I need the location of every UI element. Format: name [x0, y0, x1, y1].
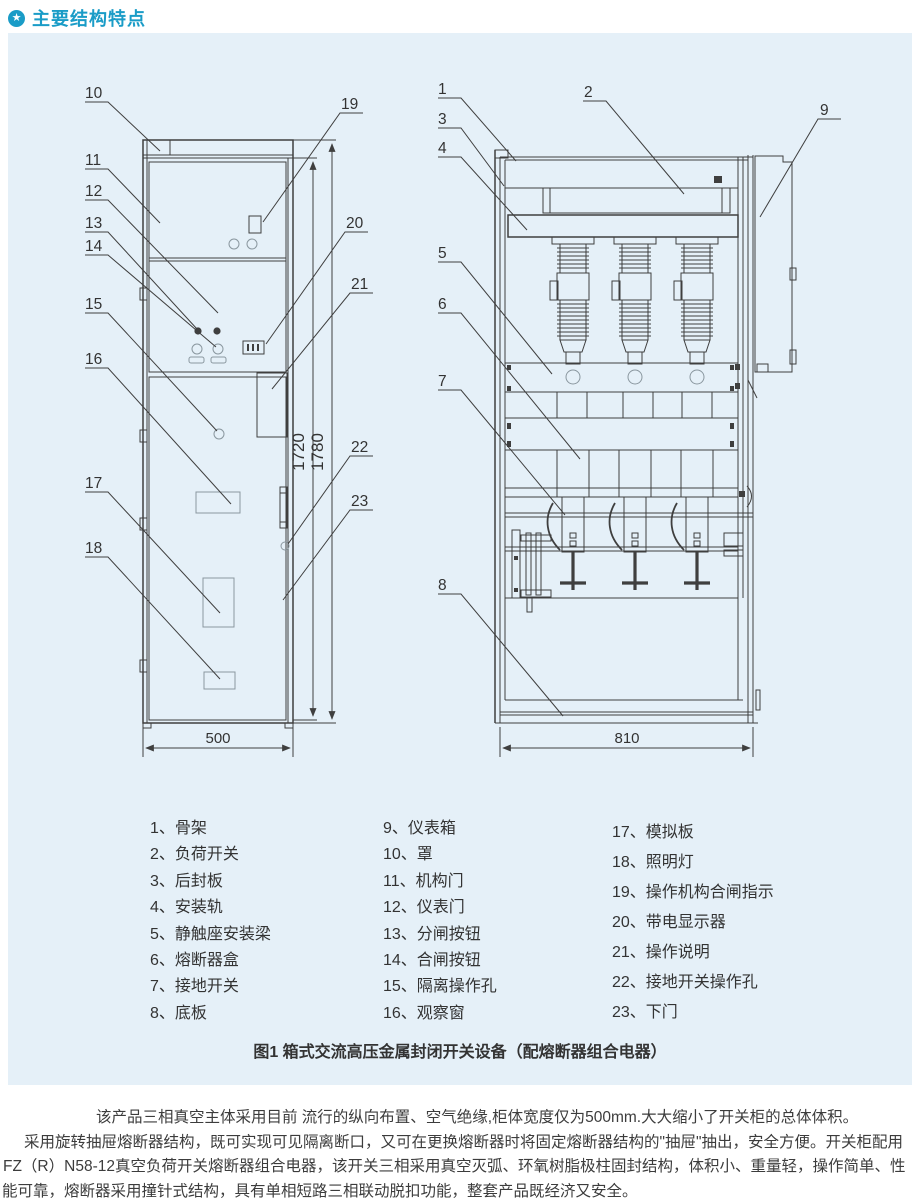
legend-item: 7、接地开关	[150, 974, 271, 1000]
legend-item: 16、观察窗	[383, 1001, 497, 1027]
star-circle-icon: ★	[8, 10, 25, 27]
observation-window	[196, 492, 240, 513]
callout-12: 12	[85, 183, 102, 200]
callout-15: 15	[85, 296, 102, 313]
load-switch	[543, 188, 730, 213]
callout-3: 3	[438, 111, 447, 128]
legend-column-3: 17、模拟板 18、照明灯 19、操作机构合闸指示 20、带电显示器 21、操作…	[612, 818, 774, 1028]
legend-item: 17、模拟板	[612, 818, 774, 848]
callout-17: 17	[85, 475, 102, 492]
legend-column-1: 1、骨架 2、负荷开关 3、后封板 4、安装轨 5、静触座安装梁 6、熔断器盒 …	[150, 816, 271, 1027]
mimic-board	[203, 578, 234, 627]
legend-item: 13、分闸按钮	[383, 922, 497, 948]
callout-14: 14	[85, 238, 103, 255]
legend-item: 3、后封板	[150, 869, 271, 895]
bottom-plate	[495, 700, 758, 723]
legend-item: 20、带电显示器	[612, 908, 774, 938]
lighting-lamp	[204, 672, 235, 689]
legend-item: 2、负荷开关	[150, 842, 271, 868]
callout-5: 5	[438, 245, 447, 262]
callout-19: 19	[341, 96, 358, 113]
mounting-rail	[508, 215, 738, 237]
dim-side-depth: 810	[614, 730, 639, 747]
earth-switch-shaft	[505, 513, 753, 551]
legend-item: 15、隔离操作孔	[383, 974, 497, 1000]
legend-item: 10、罩	[383, 842, 497, 868]
callout-16: 16	[85, 351, 102, 368]
callout-4: 4	[438, 140, 447, 157]
legend-item: 19、操作机构合闸指示	[612, 878, 774, 908]
callout-6: 6	[438, 296, 447, 313]
legend-item: 21、操作说明	[612, 938, 774, 968]
legend-item: 1、骨架	[150, 816, 271, 842]
callout-21: 21	[351, 276, 368, 293]
callout-18: 18	[85, 540, 102, 557]
front-view: 500 1720 1780	[140, 140, 336, 757]
side-view-leaders: 1 2 3 4 5 6 7 8 9	[438, 81, 841, 716]
side-view: 810	[495, 150, 796, 757]
legend-item: 14、合闸按钮	[383, 948, 497, 974]
callout-2: 2	[584, 84, 593, 101]
legend-item: 9、仪表箱	[383, 816, 497, 842]
callout-7: 7	[438, 373, 447, 390]
description-line: 采用旋转抽屉熔断器结构，既可实现可见隔离断口，又可在更换熔断器时将固定熔断器结构…	[2, 1131, 918, 1156]
fuse-box	[505, 418, 738, 450]
callout-8: 8	[438, 577, 447, 594]
front-view-leaders: 10 11 12 13 14 15 16 17 18 19 20 21 22 2…	[85, 85, 373, 679]
legend-item: 8、底板	[150, 1001, 271, 1027]
callout-22: 22	[351, 439, 368, 456]
callout-13: 13	[85, 215, 102, 232]
instrument-box	[755, 156, 792, 372]
dim-height-body: 1720	[289, 433, 308, 471]
figure-caption: 图1 箱式交流高压金属封闭开关设备（配熔断器组合电器）	[8, 1038, 912, 1062]
page-title: 主要结构特点	[32, 5, 146, 31]
legend-item: 4、安装轨	[150, 895, 271, 921]
callout-20: 20	[346, 215, 364, 232]
closing-indicator	[249, 216, 261, 233]
figure-drawing: 500 1720 1780 10 11 12 13 14 15 16 17 18…	[8, 33, 912, 803]
section-header: ★ 主要结构特点	[8, 5, 146, 31]
static-contact-beam	[505, 363, 738, 392]
legend-item: 11、机构门	[383, 869, 497, 895]
legend-item: 22、接地开关操作孔	[612, 968, 774, 998]
description-paragraph: 该产品三相真空主体采用目前 流行的纵向布置、空气绝缘,柜体宽度仅为500mm.大…	[2, 1106, 918, 1204]
callout-23: 23	[351, 493, 368, 510]
description-line: FZ（R）N58-12真空负荷开关熔断器组合电器，该开关三相采用真空灭弧、环氧树…	[2, 1155, 918, 1180]
callout-11: 11	[85, 152, 101, 169]
closing-button	[213, 327, 220, 334]
callout-9: 9	[820, 102, 829, 119]
description-line: 该产品三相真空主体采用目前 流行的纵向布置、空气绝缘,柜体宽度仅为500mm.大…	[2, 1106, 918, 1131]
legend-item: 12、仪表门	[383, 895, 497, 921]
instruction-plate	[257, 373, 287, 437]
dim-height-total: 1780	[308, 433, 327, 471]
description-line: 能可靠，熔断器采用撞针式结构，具有单相短路三相联动脱扣功能，整套产品既经济又安全…	[2, 1180, 918, 1204]
legend-item: 18、照明灯	[612, 848, 774, 878]
isolation-hole	[214, 429, 224, 439]
callout-1: 1	[438, 81, 447, 98]
legend-item: 23、下门	[612, 998, 774, 1028]
legend-item: 5、静触座安装梁	[150, 922, 271, 948]
dim-front-width: 500	[205, 730, 230, 747]
legend-column-2: 9、仪表箱 10、罩 11、机构门 12、仪表门 13、分闸按钮 14、合闸按钮…	[383, 816, 497, 1027]
callout-10: 10	[85, 85, 103, 102]
legend-item: 6、熔断器盒	[150, 948, 271, 974]
